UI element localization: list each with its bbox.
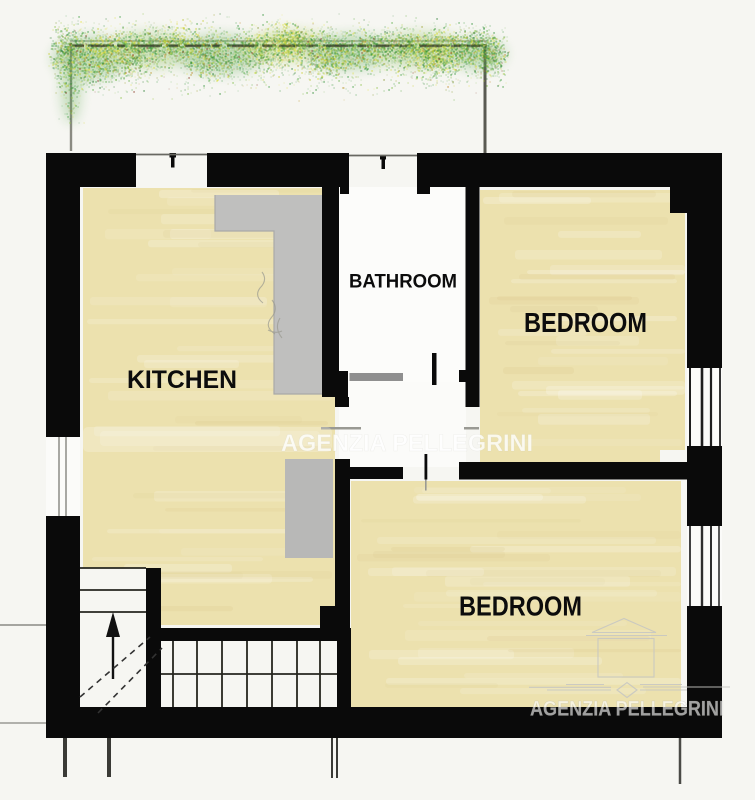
svg-text:AGENZIA PELLEGRINI: AGENZIA PELLEGRINI [281,430,533,457]
svg-text:BEDROOM: BEDROOM [459,591,582,622]
svg-text:AGENZIA PELLEGRINI: AGENZIA PELLEGRINI [530,698,724,721]
svg-text:BEDROOM: BEDROOM [524,307,647,338]
svg-text:KITCHEN: KITCHEN [127,366,237,394]
svg-text:BATHROOM: BATHROOM [349,271,457,293]
